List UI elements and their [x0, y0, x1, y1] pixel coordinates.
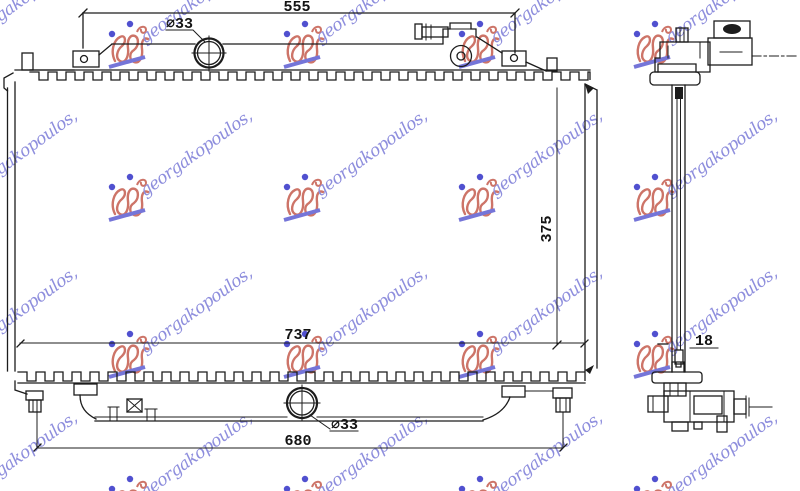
- watermark-cluster: georgakopoulos,: [0, 408, 81, 491]
- watermark-cluster: georgakopoulos,: [284, 106, 431, 220]
- technical-drawing: georgakopoulos,georgakopoulos,georgakopo…: [0, 0, 800, 491]
- watermark-cluster: georgakopoulos,: [459, 0, 606, 67]
- dim-drain-diameter-label: ∅33: [331, 417, 358, 434]
- left-drain-plug: [29, 400, 41, 412]
- watermark-text: georgakopoulos,: [136, 0, 256, 48]
- watermark-text: georgakopoulos,: [311, 106, 431, 201]
- side-bottom-flange: [652, 372, 702, 383]
- core-top-serration: [30, 72, 590, 80]
- watermark-text: georgakopoulos,: [0, 106, 81, 201]
- top-tank: [15, 44, 443, 70]
- watermark-cluster: georgakopoulos,: [0, 106, 81, 220]
- watermark-text: georgakopoulos,: [486, 263, 606, 358]
- right-mount-bracket: [502, 51, 526, 66]
- watermark-cluster: georgakopoulos,: [109, 0, 256, 67]
- filler-cap: [166, 30, 226, 71]
- watermark-text: georgakopoulos,: [0, 0, 81, 48]
- watermark-text: georgakopoulos,: [136, 263, 256, 358]
- watermark-text: georgakopoulos,: [661, 263, 781, 358]
- dim-cap-diameter-label: ∅33: [166, 16, 193, 33]
- watermark-text: georgakopoulos,: [311, 263, 431, 358]
- front-view: [4, 9, 597, 451]
- watermark-text: georgakopoulos,: [661, 106, 781, 201]
- side-view: [648, 21, 798, 432]
- watermark-cluster: georgakopoulos,: [459, 263, 606, 377]
- dim-bottom-width-label: 680: [284, 433, 311, 450]
- watermark-text: georgakopoulos,: [661, 408, 781, 491]
- watermark-text: georgakopoulos,: [0, 263, 81, 358]
- watermark-cluster: georgakopoulos,: [0, 263, 81, 377]
- watermark-cluster: georgakopoulos,: [459, 106, 606, 220]
- watermark-cluster: georgakopoulos,: [634, 408, 781, 491]
- watermark-text: georgakopoulos,: [661, 0, 781, 48]
- watermark-text: georgakopoulos,: [311, 0, 431, 48]
- watermark-cluster: georgakopoulos,: [109, 263, 256, 377]
- dim-core-height-label: 375: [539, 215, 556, 242]
- watermark-text: georgakopoulos,: [486, 106, 606, 201]
- watermark-cluster: georgakopoulos,: [634, 263, 781, 377]
- dim-core-width-label: 737: [284, 327, 311, 344]
- watermark-cluster: georgakopoulos,: [109, 106, 256, 220]
- side-top-flange: [650, 72, 700, 85]
- watermark-text: georgakopoulos,: [486, 408, 606, 491]
- watermark-cluster: georgakopoulos,: [284, 263, 431, 377]
- dim-top-width-label: 555: [283, 0, 310, 16]
- watermark-text: georgakopoulos,: [486, 0, 606, 48]
- watermark-text: georgakopoulos,: [0, 408, 81, 491]
- radiator-drawing-canvas: georgakopoulos,georgakopoulos,georgakopo…: [0, 0, 800, 491]
- right-outlet-plug: [556, 398, 570, 412]
- watermark-text: georgakopoulos,: [136, 106, 256, 201]
- dim-side-thickness-label: 18: [695, 333, 713, 350]
- watermark-cluster: georgakopoulos,: [634, 106, 781, 220]
- watermark-cluster: georgakopoulos,: [0, 0, 81, 67]
- left-mount-bracket: [73, 51, 99, 67]
